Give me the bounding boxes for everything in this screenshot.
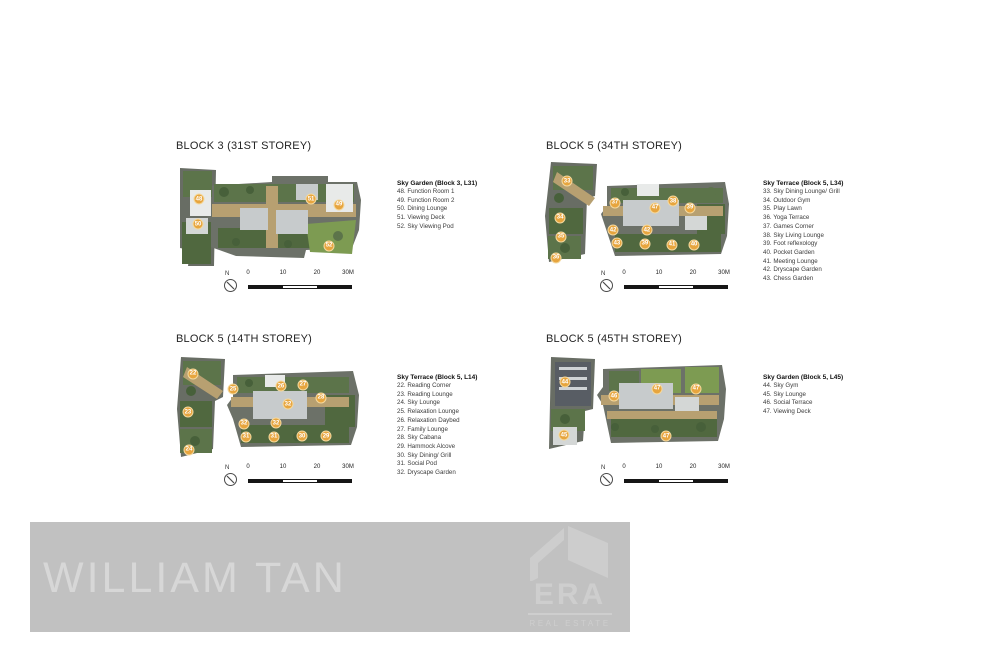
legend-item: 42. Dryscape Garden: [763, 266, 888, 275]
legend-item: 47. Viewing Deck: [763, 408, 888, 417]
legend-item: 37. Games Corner: [763, 223, 888, 232]
scale-bar: [248, 285, 352, 289]
panel-heading-block3-l31: BLOCK 3 (31ST STOREY): [176, 140, 311, 152]
floor-plan-block5-l45: 444647474547: [545, 357, 726, 456]
legend-item: 28. Sky Cabana: [397, 434, 522, 443]
scale-tick-0: 0: [622, 464, 625, 470]
plan-marker-44: 44: [559, 377, 570, 388]
plan-marker-47: 47: [652, 383, 663, 394]
legend-item: 51. Viewing Deck: [397, 214, 522, 223]
plan-marker-51: 51: [306, 194, 317, 205]
legend-item: 50. Dining Lounge: [397, 205, 522, 214]
scale-tick-0: 0: [246, 270, 249, 276]
plan-marker-43: 43: [611, 238, 622, 249]
plan-marker-42: 42: [608, 225, 619, 236]
legend-item: 26. Relaxation Daybed: [397, 417, 522, 426]
floor-plan-art: [545, 162, 729, 266]
legend-item: 39. Foot reflexology: [763, 240, 888, 249]
legend-item: 52. Sky Viewing Pod: [397, 223, 522, 232]
scale-bar: [624, 479, 728, 483]
era-subtext: REAL ESTATE: [528, 619, 612, 628]
plan-marker-39: 39: [639, 238, 650, 249]
legend-item: 27. Family Lounge: [397, 426, 522, 435]
era-rule: [528, 613, 612, 615]
legend-title: Sky Terrace (Block 5, L34): [763, 179, 888, 188]
agent-name-watermark: WILLIAM TAN: [43, 554, 347, 603]
scale-tick-20: 20: [314, 270, 321, 276]
legend-item: 22. Reading Corner: [397, 382, 522, 391]
plan-marker-32: 32: [283, 399, 294, 410]
scale-tick-10: 10: [280, 270, 287, 276]
legend-title: Sky Garden (Block 5, L45): [763, 373, 888, 382]
legend-item: 38. Sky Living Lounge: [763, 232, 888, 241]
legend-item: 30. Sky Dining/ Grill: [397, 452, 522, 461]
era-roof-icon: [530, 524, 610, 581]
floor-plan-block3-l31: 4850514952: [178, 166, 362, 268]
scale-tick-0: 0: [246, 464, 249, 470]
scale-bar-group-3: N 0 10 20 30M: [220, 462, 356, 490]
legend-item: 41. Meeting Lounge: [763, 258, 888, 267]
legend-item: 40. Pocket Garden: [763, 249, 888, 258]
plan-marker-25: 25: [228, 384, 239, 395]
legend-item: 45. Sky Lounge: [763, 391, 888, 400]
plan-marker-50: 50: [193, 219, 204, 230]
scale-bar-group-1: N 0 10 20 30M: [220, 268, 356, 296]
scale-tick-10: 10: [656, 464, 663, 470]
plan-marker-36: 36: [551, 252, 562, 263]
scale-bar-group-2: N 0 10 20 30M: [596, 268, 732, 296]
legend-item: 43. Chess Garden: [763, 275, 888, 284]
floor-plan-block5-l14: 2225262728322332323131302924: [177, 357, 359, 461]
legend-item: 33. Sky Dining Lounge/ Grill: [763, 188, 888, 197]
plan-marker-23: 23: [182, 407, 193, 418]
plan-marker-38: 38: [668, 196, 679, 207]
plan-marker-33: 33: [562, 176, 573, 187]
plan-marker-24: 24: [184, 444, 195, 455]
era-logo: ERA REAL ESTATE: [528, 524, 612, 628]
panel-heading-block5-l14: BLOCK 5 (14TH STOREY): [176, 333, 312, 345]
plan-marker-48: 48: [193, 194, 204, 205]
floor-plan-block5-l34: 3334353637473839424243394140: [545, 162, 729, 266]
legend-item: 34. Outdoor Gym: [763, 197, 888, 206]
plan-marker-47: 47: [690, 383, 701, 394]
floor-plan-art: [545, 357, 726, 456]
legend-block3-l31: Sky Garden (Block 3, L31) 48. Function R…: [397, 179, 522, 232]
plan-marker-47: 47: [650, 202, 661, 213]
legend-block5-l34: Sky Terrace (Block 5, L34) 33. Sky Dinin…: [763, 179, 888, 284]
north-label: N: [601, 271, 605, 277]
scale-tick-30m: 30M: [718, 270, 730, 276]
legend-title: Sky Terrace (Block 5, L14): [397, 373, 522, 382]
scale-tick-20: 20: [314, 464, 321, 470]
scale-tick-0: 0: [622, 270, 625, 276]
watermark-banner: WILLIAM TAN ERA REAL ESTATE: [30, 522, 630, 632]
plan-marker-39: 39: [684, 202, 695, 213]
scale-tick-30m: 30M: [718, 464, 730, 470]
plan-marker-32: 32: [271, 418, 282, 429]
legend-block5-l45: Sky Garden (Block 5, L45) 44. Sky Gym45.…: [763, 373, 888, 417]
legend-title: Sky Garden (Block 3, L31): [397, 179, 522, 188]
plan-marker-29: 29: [321, 431, 332, 442]
north-compass-icon: N: [600, 471, 615, 486]
plan-marker-31: 31: [240, 431, 251, 442]
scale-tick-10: 10: [280, 464, 287, 470]
plan-marker-41: 41: [666, 239, 677, 250]
plan-marker-34: 34: [555, 212, 566, 223]
north-compass-icon: N: [224, 471, 239, 486]
north-compass-icon: N: [224, 277, 239, 292]
scale-tick-20: 20: [690, 464, 697, 470]
scale-bar: [248, 479, 352, 483]
scale-tick-30m: 30M: [342, 464, 354, 470]
plan-marker-26: 26: [275, 381, 286, 392]
panel-heading-block5-l45: BLOCK 5 (45TH STOREY): [546, 333, 682, 345]
legend-item: 48. Function Room 1: [397, 188, 522, 197]
panel-heading-block5-l34: BLOCK 5 (34TH STOREY): [546, 140, 682, 152]
north-label: N: [601, 465, 605, 471]
legend-item: 24. Sky Lounge: [397, 399, 522, 408]
scale-bar: [624, 285, 728, 289]
legend-item: 23. Reading Lounge: [397, 391, 522, 400]
legend-item: 32. Dryscape Garden: [397, 469, 522, 478]
north-compass-icon: N: [600, 277, 615, 292]
era-wordmark: ERA: [528, 580, 612, 610]
plan-marker-46: 46: [608, 391, 619, 402]
plan-marker-45: 45: [559, 430, 570, 441]
plan-marker-22: 22: [188, 368, 199, 379]
plan-marker-49: 49: [334, 199, 345, 210]
plan-marker-42: 42: [641, 225, 652, 236]
legend-item: 46. Social Terrace: [763, 399, 888, 408]
floor-plan-art: [178, 166, 362, 268]
legend-item: 44. Sky Gym: [763, 382, 888, 391]
legend-item: 36. Yoga Terrace: [763, 214, 888, 223]
scale-bar-group-4: N 0 10 20 30M: [596, 462, 732, 490]
scale-tick-30m: 30M: [342, 270, 354, 276]
plan-marker-40: 40: [689, 239, 700, 250]
plan-marker-27: 27: [297, 379, 308, 390]
plan-marker-37: 37: [609, 197, 620, 208]
legend-block5-l14: Sky Terrace (Block 5, L14) 22. Reading C…: [397, 373, 522, 478]
legend-item: 25. Relaxation Lounge: [397, 408, 522, 417]
north-label: N: [225, 465, 229, 471]
scale-tick-20: 20: [690, 270, 697, 276]
brochure-page: { "panels": [ { "id": "block3-l31", "hea…: [0, 0, 1000, 653]
plan-marker-35: 35: [556, 231, 567, 242]
plan-marker-47: 47: [661, 431, 672, 442]
legend-item: 29. Hammock Alcove: [397, 443, 522, 452]
scale-tick-10: 10: [656, 270, 663, 276]
plan-marker-31: 31: [269, 431, 280, 442]
plan-marker-30: 30: [297, 431, 308, 442]
legend-item: 49. Function Room 2: [397, 197, 522, 206]
legend-item: 31. Social Pod: [397, 460, 522, 469]
legend-item: 35. Play Lawn: [763, 205, 888, 214]
plan-marker-52: 52: [324, 240, 335, 251]
plan-marker-32: 32: [238, 418, 249, 429]
plan-marker-28: 28: [315, 392, 326, 403]
north-label: N: [225, 271, 229, 277]
floor-plan-art: [177, 357, 359, 461]
